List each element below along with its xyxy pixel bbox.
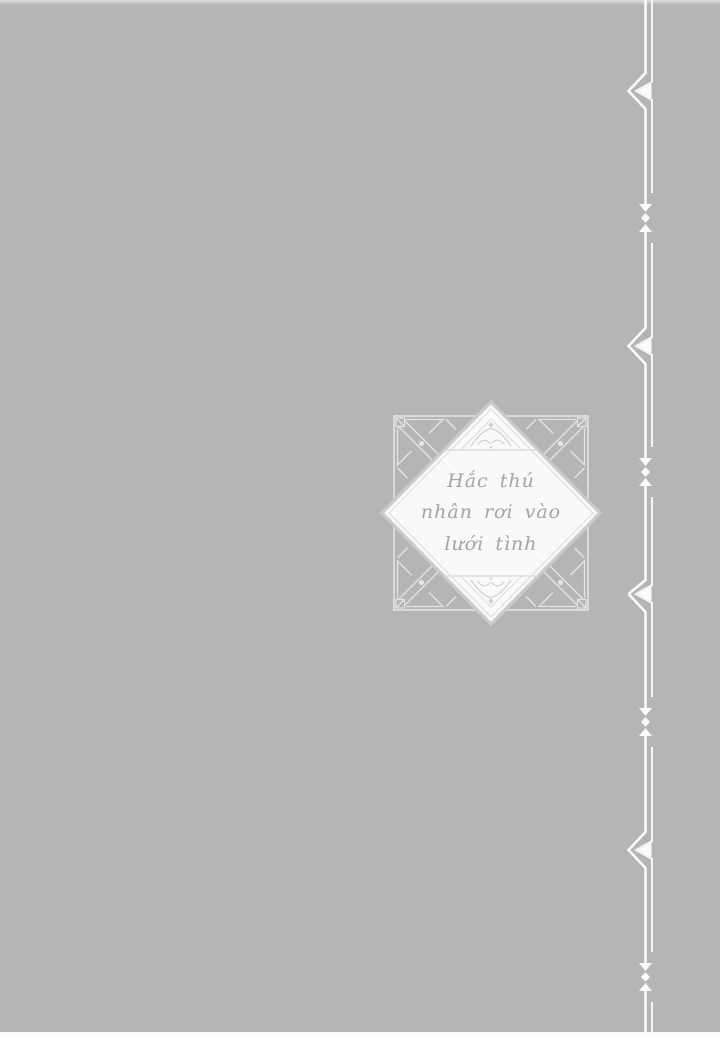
page-bottom-edge bbox=[0, 1032, 720, 1038]
arrow-down-icon bbox=[639, 204, 652, 212]
double-vertical-rule bbox=[629, 0, 646, 1038]
diamond-dot-icon bbox=[641, 717, 650, 727]
arrow-up-icon bbox=[639, 728, 652, 736]
arrow-up-icon bbox=[639, 983, 652, 991]
title-emblem: Hắc thú nhân rơi vào lưới tình bbox=[373, 393, 609, 635]
arrow-up-icon bbox=[639, 224, 652, 232]
emblem-graphic bbox=[373, 393, 609, 635]
diamond-badge bbox=[382, 402, 600, 624]
manga-page: Hắc thú nhân rơi vào lưới tình bbox=[0, 0, 720, 1038]
arrow-up-icon bbox=[639, 478, 652, 486]
diamond-dot-icon bbox=[641, 972, 650, 982]
arrow-down-icon bbox=[639, 708, 652, 716]
diamond-dot-icon bbox=[641, 213, 650, 223]
right-border-ornament bbox=[600, 0, 720, 1038]
secondary-vertical-rule bbox=[636, 0, 652, 1038]
diamond-dot-icon bbox=[641, 467, 650, 477]
arrow-down-icon bbox=[639, 458, 652, 466]
arrow-down-icon bbox=[639, 963, 652, 971]
